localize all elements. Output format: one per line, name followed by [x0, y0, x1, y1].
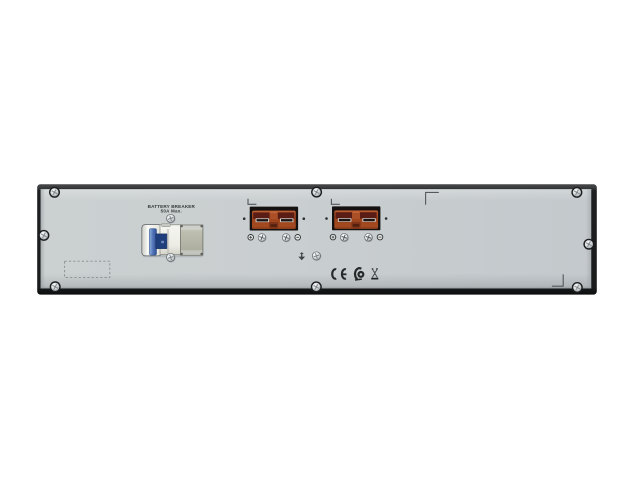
svg-text:50A Max.: 50A Max. — [161, 209, 182, 214]
